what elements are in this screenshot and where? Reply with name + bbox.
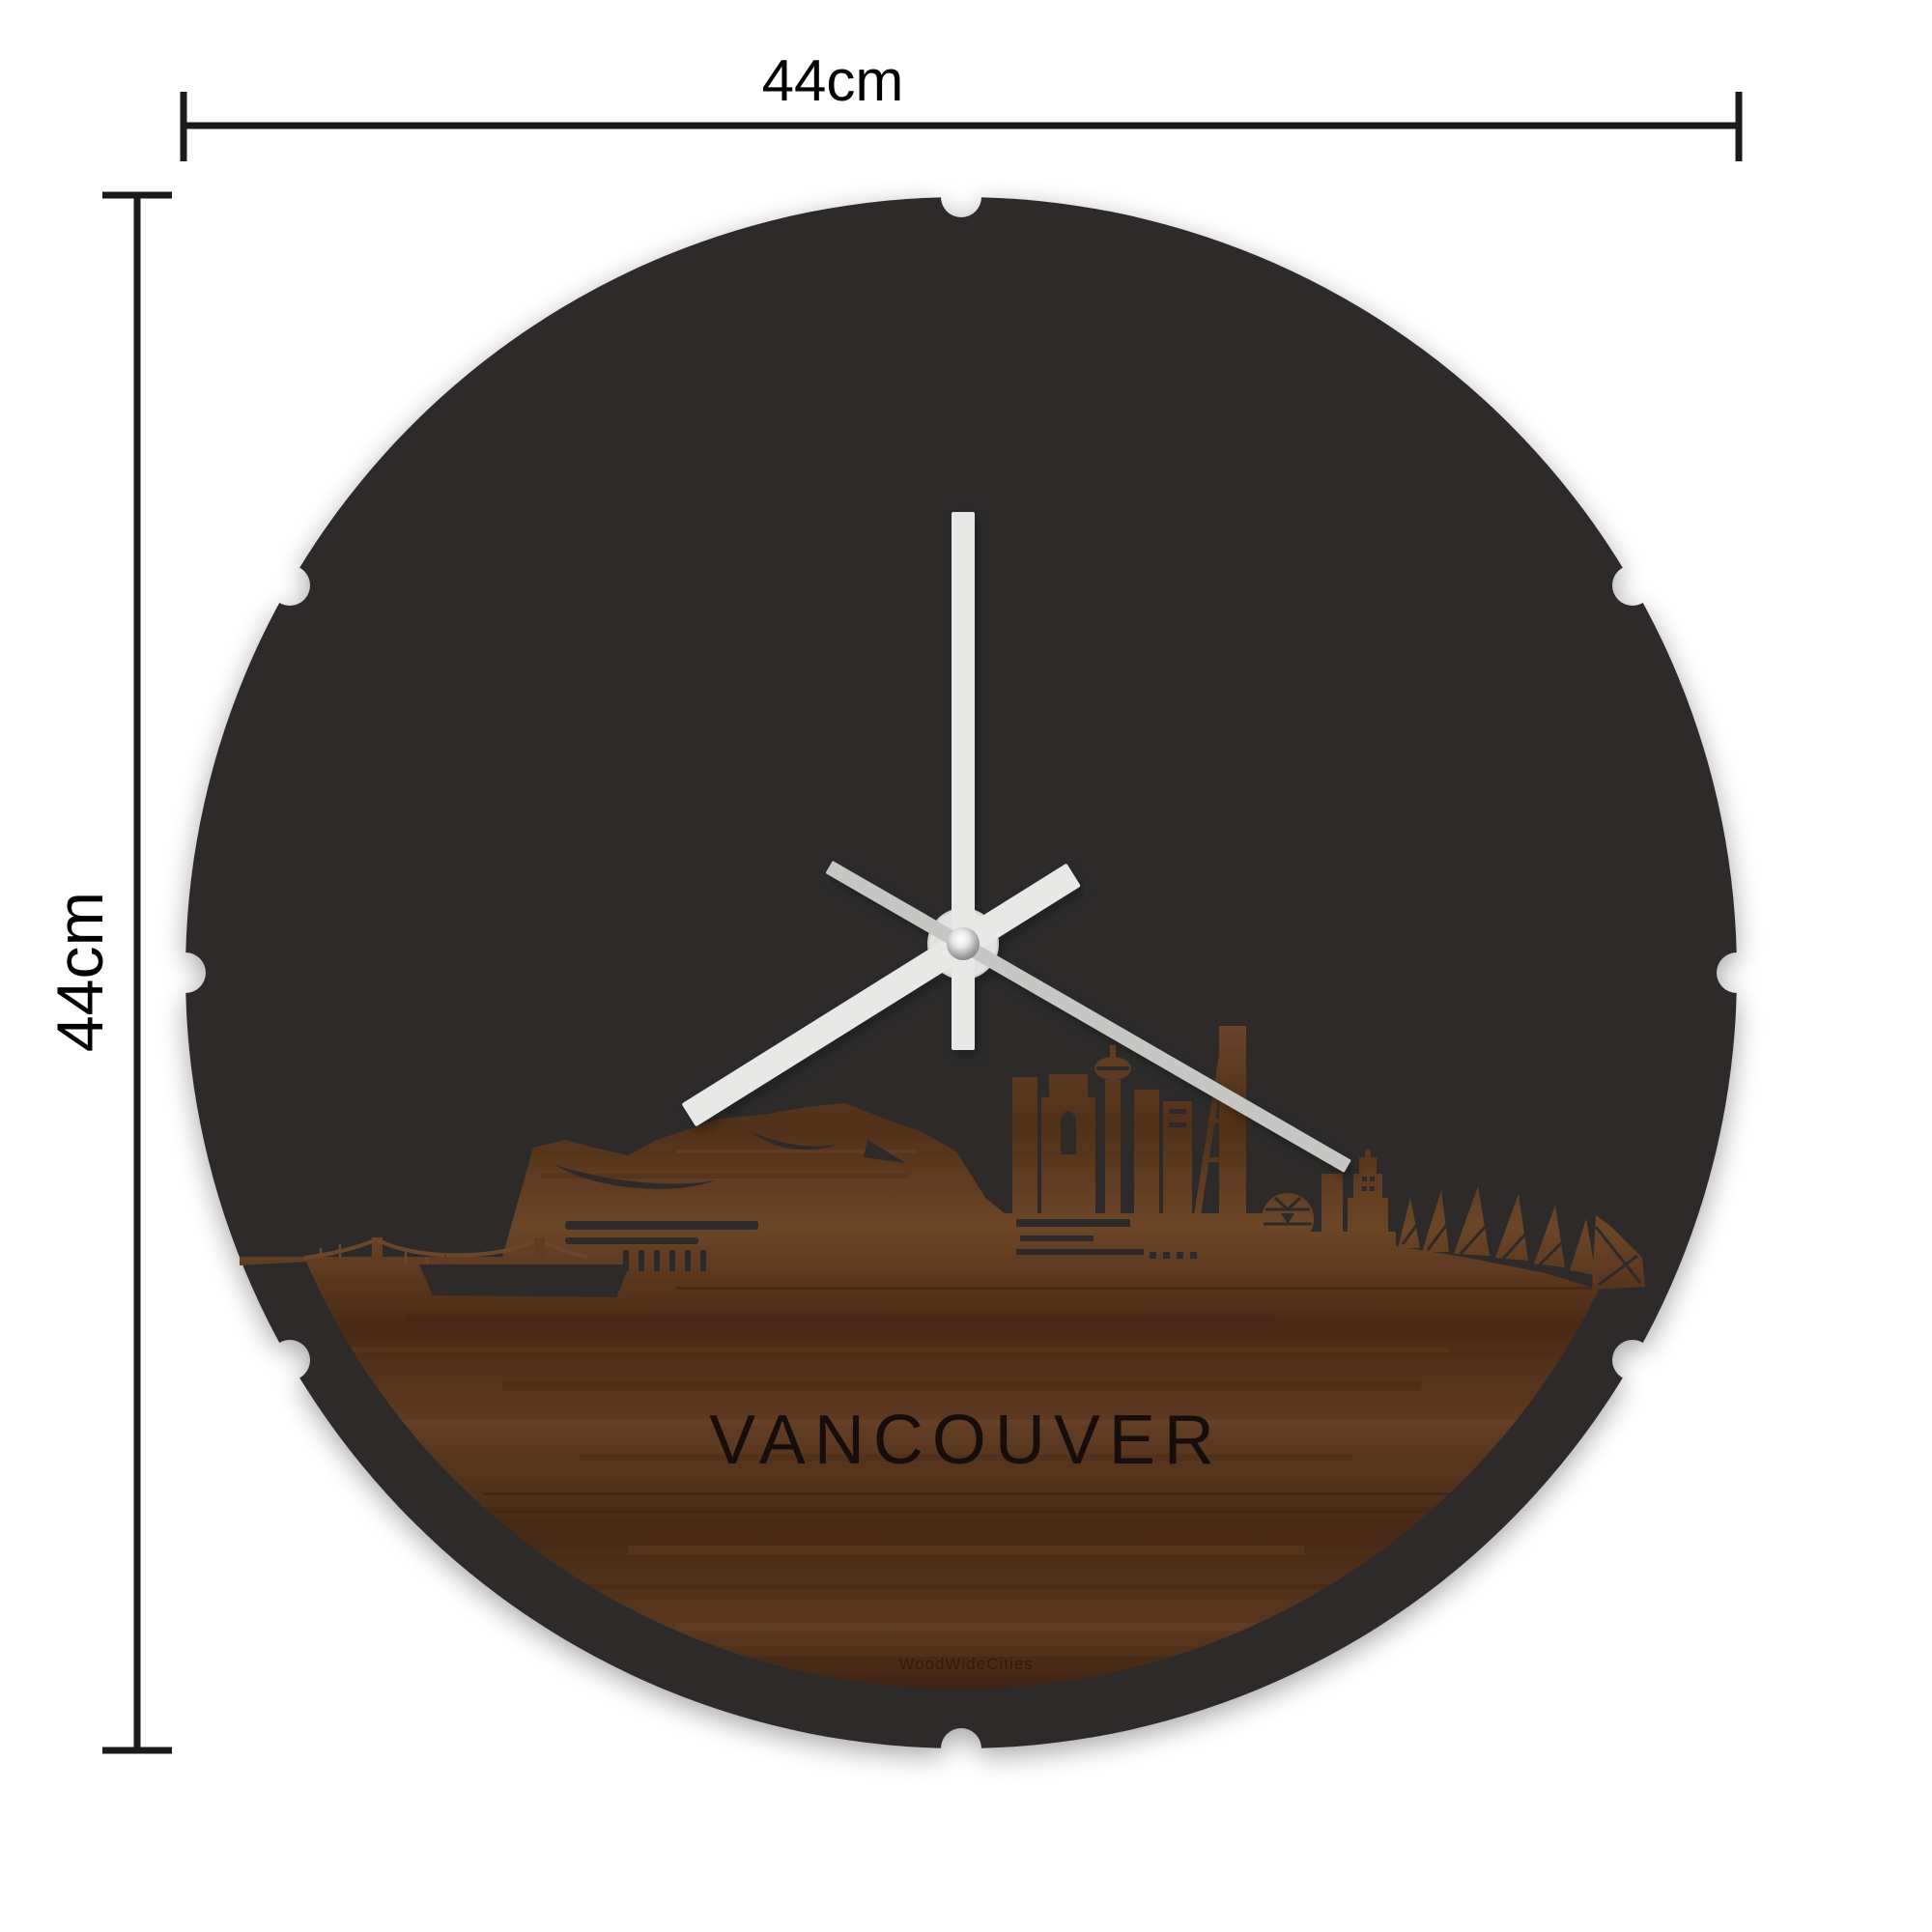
harbour-centre-antenna bbox=[1110, 1045, 1116, 1065]
brand-watermark: WoodWideCities bbox=[898, 1655, 1033, 1673]
city-label: VANCOUVER bbox=[709, 1402, 1223, 1479]
hub-cap bbox=[947, 927, 980, 960]
minute-hand bbox=[952, 512, 975, 1050]
width-dimension-label: 44cm bbox=[762, 48, 904, 113]
width-dimension-line bbox=[184, 123, 1739, 129]
product-image: 44cm 44cm bbox=[0, 0, 1932, 1932]
hotel-arch-cutout bbox=[1061, 1111, 1076, 1154]
width-dimension-tick-left bbox=[181, 92, 187, 161]
wall-clock: VANCOUVER WoodWideCities bbox=[185, 197, 1737, 1748]
harbour-centre-column bbox=[1105, 1080, 1121, 1217]
water-inlet-cutout bbox=[419, 1264, 630, 1297]
width-dimension: 44cm bbox=[181, 48, 1743, 161]
height-dimension-tick-top bbox=[102, 192, 172, 199]
height-dimension-label: 44cm bbox=[43, 892, 117, 1052]
width-dimension-tick-right bbox=[1736, 92, 1743, 161]
height-dimension-tick-bottom bbox=[102, 1747, 172, 1754]
height-dimension: 44cm bbox=[43, 192, 172, 1754]
height-dimension-line bbox=[134, 195, 141, 1750]
